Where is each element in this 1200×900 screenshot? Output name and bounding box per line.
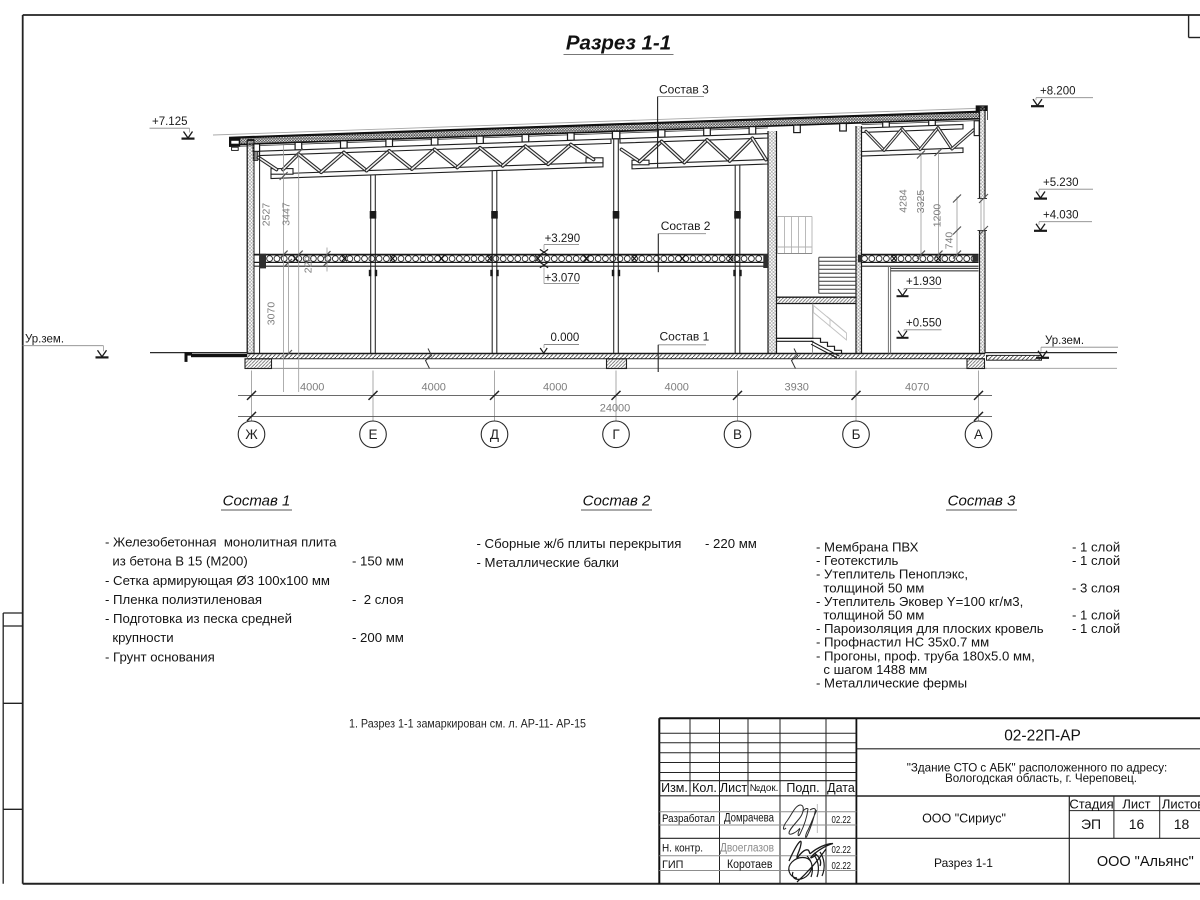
svg-text:- 1 слой: - 1 слой	[1072, 553, 1120, 568]
svg-text:+3.290: +3.290	[545, 233, 581, 245]
svg-text:3930: 3930	[784, 381, 808, 393]
svg-text:Состав 2: Состав 2	[583, 493, 651, 510]
svg-text:+7.125: +7.125	[152, 116, 188, 128]
svg-text:крупности: крупности	[105, 630, 174, 645]
svg-text:4284: 4284	[898, 189, 910, 213]
svg-text:Состав 1: Состав 1	[660, 330, 710, 344]
svg-text:- 1 слой: - 1 слой	[1072, 621, 1120, 636]
svg-text:+8.200: +8.200	[1040, 86, 1076, 98]
svg-text:16: 16	[1129, 816, 1145, 832]
svg-text:1200: 1200	[932, 204, 944, 228]
svg-text:+1.930: +1.930	[906, 276, 942, 288]
svg-text:4000: 4000	[664, 381, 688, 393]
svg-text:В: В	[733, 427, 742, 442]
svg-text:Домрачева: Домрачева	[724, 813, 774, 825]
svg-text:Б: Б	[852, 427, 861, 442]
svg-text:Коротаев: Коротаев	[727, 859, 773, 871]
svg-text:- Сборные ж/б плиты перекрытия: - Сборные ж/б плиты перекрытия	[477, 536, 682, 551]
svg-text:Стадия: Стадия	[1069, 797, 1113, 812]
svg-text:Ур.зем.: Ур.зем.	[25, 334, 64, 346]
svg-text:02.22: 02.22	[832, 860, 852, 872]
svg-text:24000: 24000	[600, 402, 631, 414]
svg-text:+4.030: +4.030	[1043, 210, 1079, 222]
svg-text:Листов: Листов	[1162, 797, 1200, 812]
svg-text:740: 740	[944, 232, 956, 250]
svg-text:Ж: Ж	[245, 427, 258, 442]
svg-text:Г: Г	[612, 427, 620, 442]
svg-text:А: А	[974, 427, 983, 442]
svg-text:Е: Е	[368, 427, 377, 442]
svg-text:18: 18	[1174, 816, 1190, 832]
svg-text:- Грунт основания: - Грунт основания	[105, 649, 215, 664]
svg-text:3070: 3070	[266, 302, 278, 326]
svg-text:Д: Д	[490, 427, 499, 442]
svg-text:Н. контр.: Н. контр.	[662, 843, 703, 855]
svg-text:Разработал: Разработал	[662, 813, 715, 825]
svg-text:3447: 3447	[281, 202, 293, 226]
svg-text:Лист: Лист	[720, 781, 747, 795]
svg-text:из бетона В 15 (М200): из бетона В 15 (М200)	[105, 554, 248, 569]
svg-text:ООО "Альянс": ООО "Альянс"	[1097, 854, 1194, 870]
svg-text:ООО "Сириус": ООО "Сириус"	[922, 812, 1006, 826]
svg-text:- 200 мм: - 200 мм	[352, 630, 404, 645]
svg-text:- Металлические балки: - Металлические балки	[477, 555, 619, 570]
svg-text:ЭП: ЭП	[1081, 816, 1101, 832]
svg-text:Состав 1: Состав 1	[223, 493, 291, 510]
svg-text:- 2 слоя: - 2 слоя	[352, 592, 404, 607]
svg-text:1. Разрез 1-1 замаркирован см.: 1. Разрез 1-1 замаркирован см. л. АР-11-…	[349, 717, 586, 731]
svg-text:Разрез 1-1: Разрез 1-1	[934, 856, 993, 870]
svg-text:ГИП: ГИП	[662, 859, 683, 871]
svg-text:02.22: 02.22	[832, 814, 852, 826]
svg-text:- Сетка армирующая Ø3 100х100: - Сетка армирующая Ø3 100х100 мм	[105, 573, 330, 588]
svg-text:02-22П-АР: 02-22П-АР	[1004, 728, 1081, 745]
svg-text:- Подготовка из песка средней: - Подготовка из песка средней	[105, 611, 292, 626]
svg-text:02.22: 02.22	[832, 844, 852, 856]
svg-text:Кол.: Кол.	[692, 781, 717, 795]
svg-text:- Металлические фермы: - Металлические фермы	[816, 676, 967, 691]
svg-text:- 220 мм: - 220 мм	[705, 536, 757, 551]
svg-text:4070: 4070	[905, 381, 929, 393]
svg-text:Изм.: Изм.	[661, 781, 688, 795]
svg-text:- 150 мм: - 150 мм	[352, 554, 404, 569]
svg-text:4000: 4000	[543, 381, 567, 393]
svg-text:Ур.зем.: Ур.зем.	[1045, 335, 1084, 347]
svg-text:Подп.: Подп.	[786, 781, 819, 795]
svg-text:Состав 3: Состав 3	[948, 493, 1016, 510]
svg-text:Лист: Лист	[1122, 797, 1150, 812]
svg-text:№док.: №док.	[750, 783, 779, 794]
svg-text:Дата: Дата	[827, 781, 855, 795]
svg-text:0.000: 0.000	[551, 332, 580, 344]
svg-text:- Железобетонная монолитная п: - Железобетонная монолитная плита	[105, 535, 337, 550]
svg-text:- 3 слоя: - 3 слоя	[1072, 580, 1120, 595]
svg-text:+0.550: +0.550	[906, 318, 942, 330]
svg-text:- Пленка полиэтиленовая: - Пленка полиэтиленовая	[105, 592, 262, 607]
svg-text:4000: 4000	[421, 381, 445, 393]
svg-text:Разрез 1-1: Разрез 1-1	[566, 32, 671, 55]
svg-text:3325: 3325	[915, 190, 927, 214]
svg-text:Вологодская область, г. Черепо: Вологодская область, г. Череповец.	[945, 772, 1137, 785]
svg-text:+3.070: +3.070	[545, 272, 581, 284]
svg-text:2527: 2527	[261, 203, 273, 227]
svg-text:4000: 4000	[300, 381, 324, 393]
svg-text:Состав 3: Состав 3	[659, 83, 709, 97]
svg-text:+5.230: +5.230	[1043, 177, 1079, 189]
svg-text:Состав 2: Состав 2	[661, 219, 711, 233]
svg-text:Двоеглазов: Двоеглазов	[720, 843, 774, 855]
svg-text:220: 220	[303, 256, 315, 274]
